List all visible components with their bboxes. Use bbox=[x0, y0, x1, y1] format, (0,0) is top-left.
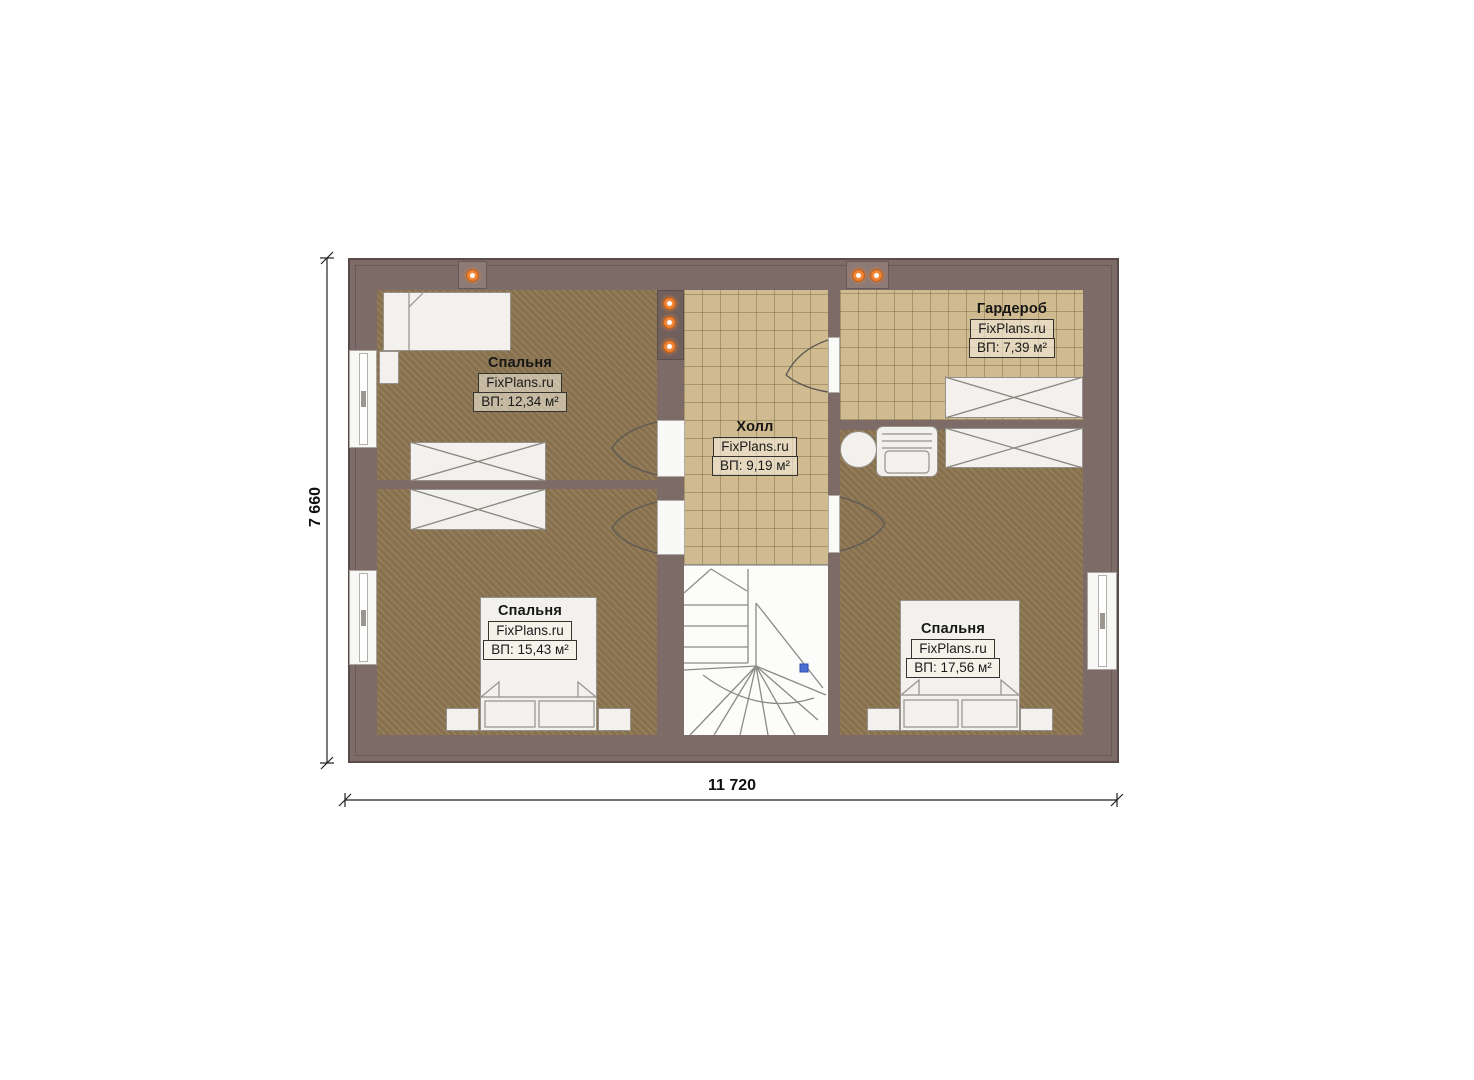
lamp-icon bbox=[663, 340, 676, 353]
lamp-icon bbox=[663, 316, 676, 329]
room-label-bedroom-right: Спальня FixPlans.ru ВП: 17,56 м² bbox=[883, 621, 1023, 678]
room-title: Спальня bbox=[450, 355, 590, 371]
lamp-icon bbox=[852, 269, 865, 282]
wardrobe-cabinet bbox=[410, 442, 546, 481]
single-bed-top-left bbox=[383, 292, 511, 351]
watermark: FixPlans.ru bbox=[911, 639, 995, 659]
watermark: FixPlans.ru bbox=[713, 437, 797, 457]
room-area: ВП: 9,19 м² bbox=[712, 456, 798, 476]
room-label-bedroom-bottom-left: Спальня FixPlans.ru ВП: 15,43 м² bbox=[460, 603, 600, 660]
door-hall-to-bedroom-bottom-left bbox=[657, 500, 685, 555]
floor-plan-page: Спальня FixPlans.ru ВП: 12,34 м² Холл Fi… bbox=[0, 0, 1474, 1080]
door-hall-to-wardrobe bbox=[828, 337, 840, 393]
nightstand bbox=[598, 708, 631, 731]
lamp-icon bbox=[466, 269, 479, 282]
dimension-height: 7 660 bbox=[307, 473, 325, 541]
wardrobe-cabinet bbox=[945, 377, 1083, 418]
room-title: Холл bbox=[685, 419, 825, 435]
window-right bbox=[1087, 572, 1117, 670]
lamp-icon bbox=[663, 297, 676, 310]
room-area: ВП: 12,34 м² bbox=[473, 392, 567, 412]
room-area: ВП: 17,56 м² bbox=[906, 658, 1000, 678]
room-label-bedroom-top-left: Спальня FixPlans.ru ВП: 12,34 м² bbox=[450, 355, 590, 412]
wardrobe-cabinet bbox=[945, 428, 1083, 468]
nightstand bbox=[379, 351, 399, 384]
room-label-wardrobe: Гардероб FixPlans.ru ВП: 7,39 м² bbox=[942, 301, 1082, 358]
room-area: ВП: 7,39 м² bbox=[969, 338, 1055, 358]
armchair bbox=[876, 426, 938, 477]
dimension-width: 11 720 bbox=[692, 777, 772, 795]
nightstand bbox=[446, 708, 479, 731]
room-title: Спальня bbox=[460, 603, 600, 619]
watermark: FixPlans.ru bbox=[970, 319, 1054, 339]
window-left-upper bbox=[349, 350, 377, 448]
stairwell-floor bbox=[684, 565, 828, 735]
room-area: ВП: 15,43 м² bbox=[483, 640, 577, 660]
wardrobe-cabinet bbox=[410, 489, 546, 530]
watermark: FixPlans.ru bbox=[478, 373, 562, 393]
room-title: Спальня bbox=[883, 621, 1023, 637]
nightstand bbox=[1020, 708, 1053, 731]
window-left-lower bbox=[349, 570, 377, 665]
lamp-icon bbox=[870, 269, 883, 282]
watermark: FixPlans.ru bbox=[488, 621, 572, 641]
door-hall-to-bedroom-top-left bbox=[657, 420, 685, 477]
nightstand bbox=[867, 708, 900, 731]
room-label-hall: Холл FixPlans.ru ВП: 9,19 м² bbox=[685, 419, 825, 476]
round-table bbox=[840, 431, 877, 468]
room-title: Гардероб bbox=[942, 301, 1082, 317]
door-hall-to-bedroom-right bbox=[828, 495, 840, 553]
